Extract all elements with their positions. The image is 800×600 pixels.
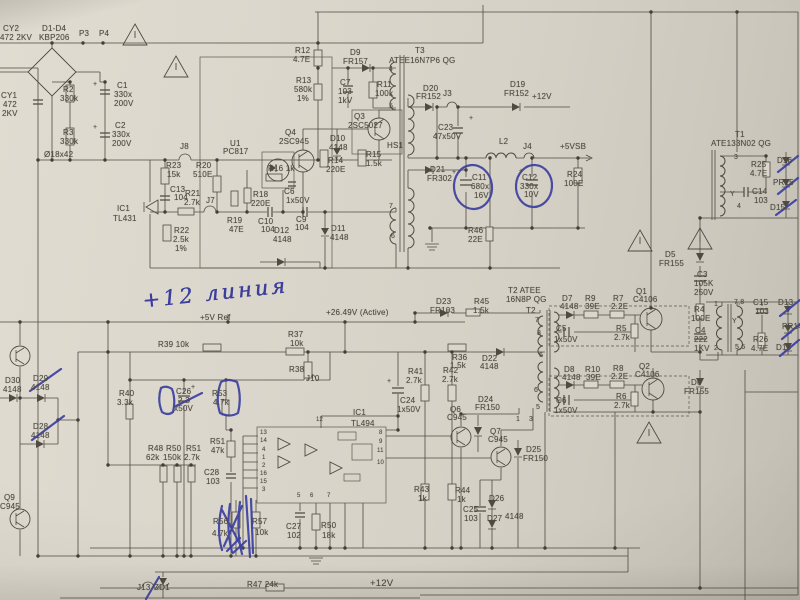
component-label: R2 <box>63 85 74 94</box>
component-label: 4148 <box>330 233 349 242</box>
component-label: D23 <box>436 297 451 306</box>
component-label: 250V <box>694 288 713 297</box>
component-label: J4 <box>523 142 532 151</box>
component-label: R46 <box>468 226 483 235</box>
component-label: 4 <box>389 66 393 74</box>
component-label: 39E <box>585 302 600 311</box>
component-label: 5,6 <box>735 344 745 352</box>
component-label: R45 <box>474 297 489 306</box>
component-label: 10k <box>290 339 304 348</box>
component-label: + <box>93 124 97 132</box>
component-label: CY1 <box>1 91 17 100</box>
component-label: D30 <box>5 376 20 385</box>
component-label: 580k <box>294 85 312 94</box>
component-label: 16 <box>260 471 267 478</box>
component-label: PR14 <box>782 322 800 331</box>
component-label: +26.49V (Active) <box>326 308 389 317</box>
component-label: 2 <box>714 345 718 353</box>
component-label: C14 <box>752 187 767 196</box>
component-label: 3 <box>262 487 266 494</box>
component-label: 2KV <box>2 109 18 118</box>
component-label: C1 <box>117 81 128 90</box>
component-label: 330k <box>60 94 78 103</box>
component-label: FR152 <box>504 89 529 98</box>
component-label: 103 <box>754 196 768 205</box>
component-label: C27 <box>286 522 301 531</box>
component-label: T2 ATEE <box>508 286 541 295</box>
component-label: 4148 <box>560 302 579 311</box>
component-label: R38 <box>289 365 304 374</box>
component-label: C11 <box>472 173 487 182</box>
component-label: 47k <box>211 446 225 455</box>
component-label: 1 <box>714 301 718 309</box>
component-label: D11 <box>331 224 346 233</box>
component-label: J10 <box>306 374 320 383</box>
component-label: 4.7k <box>213 398 229 407</box>
component-label: C24 <box>400 396 415 405</box>
component-label: 5 <box>297 493 301 500</box>
component-label: 47x50V <box>433 132 461 141</box>
component-label: L2 <box>499 137 508 146</box>
component-label: 1x50V <box>554 335 578 344</box>
component-label: 1k <box>418 494 427 503</box>
component-label: 330k <box>60 137 78 146</box>
component-label: 100E <box>564 179 583 188</box>
component-label: 2.7k <box>614 401 630 410</box>
component-label: 18k <box>322 531 336 540</box>
component-label: HS1 <box>387 141 403 150</box>
component-label: + <box>452 169 456 177</box>
component-label: 15 <box>260 479 267 486</box>
component-label: 7,8 <box>734 299 744 307</box>
component-label: 4148 <box>505 512 524 521</box>
component-label: 2SC945 <box>279 137 309 146</box>
component-label: KBP206 <box>39 33 70 42</box>
component-label: 510E <box>193 170 212 179</box>
component-label: P3 <box>79 29 89 38</box>
component-label: FR155 <box>659 259 684 268</box>
component-label: R43 <box>414 485 429 494</box>
component-label: ZD1 <box>154 583 170 592</box>
component-label: R11 <box>377 80 392 89</box>
component-label: C12 <box>522 173 537 182</box>
component-label: 200V <box>114 99 133 108</box>
component-label: 104 <box>261 225 275 234</box>
component-label: D21 <box>430 165 445 174</box>
component-label: C28 <box>204 468 219 477</box>
component-label: D9 <box>350 48 361 57</box>
component-label: R56 <box>213 517 228 526</box>
component-label: 1 <box>516 416 520 424</box>
component-label: 22E <box>468 235 483 244</box>
component-label: R42 <box>443 366 458 375</box>
component-label: 104 <box>295 223 309 232</box>
component-label: 1x50V <box>397 405 421 414</box>
component-label: C7 <box>340 78 351 87</box>
component-label: 16N8P QG <box>506 295 547 304</box>
component-label: R12 <box>295 46 310 55</box>
component-label: 4148 <box>562 373 581 382</box>
component-label: 330x <box>112 130 130 139</box>
component-label: 14 <box>260 438 267 445</box>
component-label: D1-D4 <box>42 24 66 33</box>
component-label: D10 <box>330 134 345 143</box>
component-label: R16 1k <box>268 164 295 173</box>
component-label: 1KV <box>694 344 710 353</box>
component-label: 1x50V <box>554 406 578 415</box>
component-label: C15 <box>753 298 768 307</box>
component-label: R20 <box>196 161 211 170</box>
component-label: C945 <box>0 502 20 511</box>
component-label: D5 <box>665 250 676 259</box>
component-label: 4 <box>262 447 266 454</box>
component-label: D29 <box>33 374 48 383</box>
component-label: R4 <box>694 305 705 314</box>
component-label: D25 <box>526 445 541 454</box>
component-label: 10 <box>377 460 384 467</box>
component-label: R19 <box>227 216 242 225</box>
component-label: Y <box>732 318 737 326</box>
component-label: 472 2KV <box>0 33 32 42</box>
component-label: FR150 <box>523 454 548 463</box>
component-label: 103 <box>338 87 352 96</box>
component-label: FR152 <box>416 92 441 101</box>
component-label: T1 <box>735 130 745 139</box>
component-label: 1k <box>457 495 466 504</box>
component-label: 2.7k <box>184 453 200 462</box>
component-label: R23 <box>166 161 181 170</box>
component-label: 7 <box>389 203 393 211</box>
component-label: 47E <box>229 225 244 234</box>
component-label: ATEE16N7P6 QG <box>389 56 455 65</box>
component-label: 16V <box>474 191 489 200</box>
component-label: 6 <box>539 352 543 360</box>
component-label: 2.7k <box>406 376 422 385</box>
component-label: 39E <box>586 373 601 382</box>
component-label: R40 <box>119 389 134 398</box>
component-label: 330x <box>114 90 132 99</box>
component-label: 2SC5027 <box>348 121 383 130</box>
component-label: R22 <box>174 226 189 235</box>
component-label: + <box>191 384 195 392</box>
component-label: C5 <box>556 324 567 333</box>
component-label: R21 <box>185 189 200 198</box>
component-label: R50 <box>321 521 336 530</box>
component-label: 6 <box>310 493 314 500</box>
component-label: R50 <box>166 444 181 453</box>
component-label: J13 <box>137 583 151 592</box>
component-label: D28 <box>33 422 48 431</box>
component-label: 150k <box>163 453 181 462</box>
component-label: FR103 <box>430 306 455 315</box>
component-label: C3 <box>697 270 708 279</box>
component-label: + <box>519 168 523 176</box>
component-label: 100k <box>375 89 393 98</box>
component-label: FR302 <box>427 174 452 183</box>
component-label: R25 <box>751 160 766 169</box>
component-label: 4148 <box>31 383 50 392</box>
component-label: FR150 <box>475 403 500 412</box>
component-label: 7 <box>327 493 331 500</box>
component-label: R18 <box>253 190 268 199</box>
component-label: 5 <box>536 404 540 412</box>
component-label: 2.2E <box>611 372 628 381</box>
component-label: C4 <box>695 326 706 335</box>
component-label: R39 10k <box>158 340 189 349</box>
component-label: D16 <box>777 156 792 165</box>
component-label: D14 <box>776 343 791 352</box>
component-label: 220E <box>326 165 345 174</box>
component-label: + <box>387 378 391 386</box>
component-label: Y <box>730 191 735 199</box>
component-label: J7 <box>206 196 215 205</box>
component-label: +5VSB <box>560 142 586 151</box>
component-label: 4.7E <box>751 344 768 353</box>
component-label: D13 <box>778 298 793 307</box>
component-label: R14 <box>328 156 343 165</box>
component-label: 220E <box>251 199 270 208</box>
component-label: D26 <box>489 494 504 503</box>
component-label: R51 <box>186 444 201 453</box>
component-label: 1.5k <box>366 159 382 168</box>
component-label: 103 <box>755 307 769 316</box>
component-label: 62k <box>146 453 160 462</box>
component-label: TL431 <box>113 214 137 223</box>
component-label: FR157 <box>343 57 368 66</box>
component-label: + <box>469 115 473 123</box>
component-label: D19 <box>510 80 525 89</box>
component-label: R3 <box>63 128 74 137</box>
component-label: R53 <box>212 389 227 398</box>
component-label: 4148 <box>480 362 499 371</box>
component-label: IC1 <box>117 204 130 213</box>
component-label: C4106 <box>633 295 658 304</box>
component-label: PC817 <box>223 147 248 156</box>
component-label: C26 <box>176 387 191 396</box>
component-label: R15 <box>366 150 381 159</box>
component-label: 6 <box>391 233 395 241</box>
labels-layer: CY2472 2KVD1-D4KBP206P3P4C1330x200VR2330… <box>0 0 800 600</box>
component-label: IC1 <box>353 408 366 417</box>
component-label: 8 <box>537 330 541 338</box>
component-label: R48 <box>148 444 163 453</box>
component-label: 3 <box>529 416 533 424</box>
component-label: 4.7E <box>750 169 767 178</box>
schematic-photo: CY2472 2KVD1-D4KBP206P3P4C1330x200VR2330… <box>0 0 800 600</box>
component-label: 1.5k <box>473 306 489 315</box>
component-label: C25 <box>463 505 478 514</box>
component-label: 11 <box>377 448 384 455</box>
component-label: 15k <box>167 170 181 179</box>
component-label: C945 <box>488 435 508 444</box>
component-label: ATE133N02 QG <box>711 139 771 148</box>
component-label: R51 <box>210 437 225 446</box>
component-label: 4.7k <box>212 529 228 538</box>
component-label: R6 <box>616 392 627 401</box>
component-label: D15 <box>770 203 785 212</box>
component-label: 3 <box>734 154 738 162</box>
component-label: J8 <box>180 142 189 151</box>
component-label: J3 <box>443 89 452 98</box>
component-label: T2 <box>526 306 536 315</box>
component-label: C6 <box>556 396 567 405</box>
component-label: D12 <box>274 226 289 235</box>
component-label: CY2 <box>3 24 19 33</box>
component-label: 8 <box>379 430 383 437</box>
component-label: 1x50V <box>286 196 310 205</box>
component-label: 2.7k <box>442 375 458 384</box>
component-label: 2.7k <box>184 198 200 207</box>
component-label: 4148 <box>31 431 50 440</box>
component-label: 4 <box>737 203 741 211</box>
component-label: 13 <box>260 430 267 437</box>
component-label: R47 24k <box>247 580 278 589</box>
component-label: C2 <box>115 121 126 130</box>
component-label: 2 <box>262 463 266 470</box>
component-label: 680x <box>471 182 489 191</box>
component-label: R57 <box>252 517 267 526</box>
component-label: 4148 <box>329 143 348 152</box>
component-label: 102 <box>287 531 301 540</box>
component-label: R24 <box>567 170 582 179</box>
component-label: PR15 <box>773 178 794 187</box>
component-label: TL494 <box>351 419 375 428</box>
component-label: 2.2E <box>611 302 628 311</box>
component-label: D6 <box>691 378 702 387</box>
component-label: 2.7k <box>614 333 630 342</box>
component-label: 4.7E <box>293 55 310 64</box>
component-label: Q4 <box>285 128 296 137</box>
component-label: 1kV <box>338 96 352 105</box>
component-label: 1 <box>262 455 266 462</box>
component-label: C23 <box>438 123 453 132</box>
component-label: 9 <box>379 439 383 446</box>
component-label: 12 <box>316 417 323 424</box>
component-label: Q3 <box>354 112 365 121</box>
component-label: 10V <box>524 190 539 199</box>
component-label: C945 <box>447 413 467 422</box>
component-label: 472 <box>3 100 17 109</box>
component-label: R5 <box>616 324 627 333</box>
component-label: R26 <box>753 335 768 344</box>
component-label: C4106 <box>635 370 660 379</box>
component-label: C6 <box>284 187 295 196</box>
component-label: +5V Ref <box>200 313 231 322</box>
component-label: 100E <box>691 314 710 323</box>
component-label: D27 <box>487 514 502 523</box>
component-label: R44 <box>455 486 470 495</box>
component-label: 1% <box>297 94 309 103</box>
component-label: 5 <box>389 103 393 111</box>
component-label: P4 <box>99 29 109 38</box>
component-label: 2.5k <box>173 235 189 244</box>
component-label: 103 <box>206 477 220 486</box>
component-label: Q9 <box>4 493 15 502</box>
component-label: + <box>93 81 97 89</box>
component-label: R37 <box>288 330 303 339</box>
component-label: 105K <box>694 279 713 288</box>
component-label: 6 <box>534 387 538 395</box>
component-label: 10k <box>255 528 269 537</box>
component-label: R41 <box>408 367 423 376</box>
component-label: 200V <box>112 139 131 148</box>
component-label: +12V <box>532 92 552 101</box>
component-label: FR155 <box>684 387 709 396</box>
component-label: 3.3k <box>117 398 133 407</box>
component-label: 4148 <box>273 235 292 244</box>
component-label: T3 <box>415 46 425 55</box>
component-label: R13 <box>296 76 311 85</box>
component-label: 222 <box>694 335 708 344</box>
component-label: 4148 <box>3 385 22 394</box>
component-label: 103 <box>464 514 478 523</box>
component-label: x50V <box>174 404 193 413</box>
component-label: 1% <box>175 244 187 253</box>
component-label: +12V <box>370 579 393 589</box>
component-label: 7 <box>535 317 539 325</box>
component-label: Ø18x42 <box>44 150 73 159</box>
